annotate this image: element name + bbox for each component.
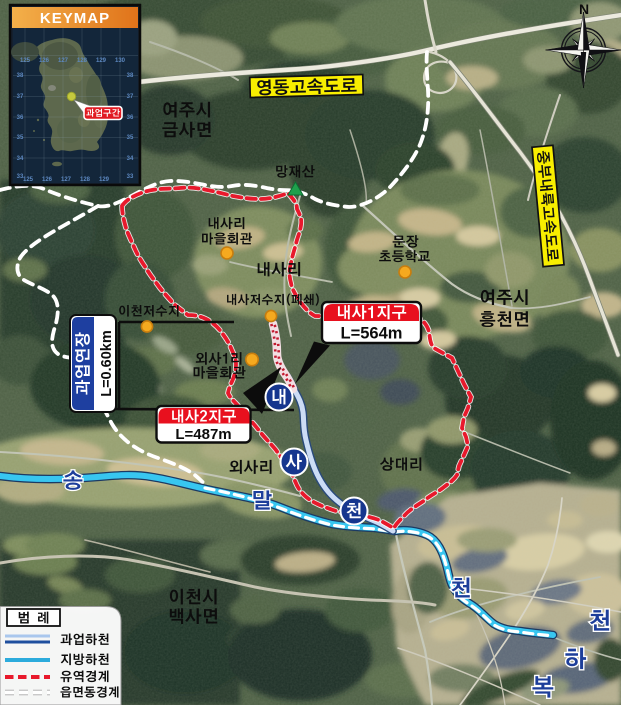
svg-text:36: 36 bbox=[17, 115, 24, 121]
svg-text:35: 35 bbox=[17, 135, 24, 141]
svg-text:125: 125 bbox=[20, 58, 31, 64]
svg-text:126: 126 bbox=[39, 58, 50, 64]
svg-text:37: 37 bbox=[127, 94, 134, 100]
svg-text:34: 34 bbox=[17, 156, 24, 162]
svg-text:L=487m: L=487m bbox=[175, 426, 231, 443]
svg-text:33: 33 bbox=[127, 174, 134, 180]
svg-text:128: 128 bbox=[80, 177, 91, 183]
svg-text:126: 126 bbox=[42, 177, 53, 183]
svg-text:35: 35 bbox=[127, 135, 134, 141]
svg-text:128: 128 bbox=[77, 58, 88, 64]
svg-text:36: 36 bbox=[127, 115, 134, 121]
svg-text:34: 34 bbox=[127, 156, 134, 162]
svg-text:38: 38 bbox=[127, 73, 134, 79]
svg-text:130: 130 bbox=[115, 58, 126, 64]
svg-text:38: 38 bbox=[17, 73, 24, 79]
svg-text:L=564m: L=564m bbox=[341, 325, 403, 343]
svg-text:L=0.60km: L=0.60km bbox=[99, 330, 115, 397]
svg-text:KEYMAP: KEYMAP bbox=[40, 10, 110, 27]
svg-text:129: 129 bbox=[99, 177, 110, 183]
svg-text:127: 127 bbox=[58, 58, 69, 64]
svg-text:129: 129 bbox=[96, 58, 107, 64]
svg-text:125: 125 bbox=[23, 177, 34, 183]
svg-text:37: 37 bbox=[17, 94, 24, 100]
svg-text:127: 127 bbox=[61, 177, 72, 183]
